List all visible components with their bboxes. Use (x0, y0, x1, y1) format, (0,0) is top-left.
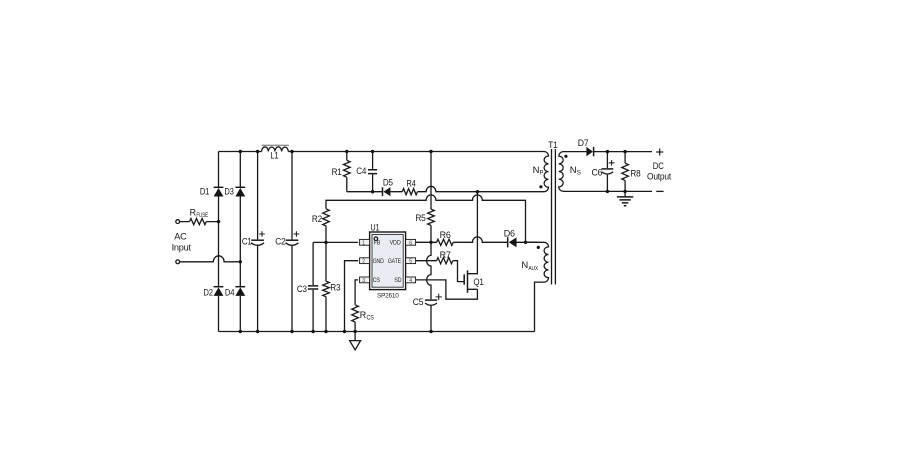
svg-text:U1: U1 (371, 223, 380, 234)
svg-text:C4: C4 (356, 166, 367, 177)
svg-text:R: R (190, 208, 196, 219)
svg-text:4: 4 (409, 278, 412, 284)
svg-text:D2: D2 (203, 288, 212, 299)
svg-text:6: 6 (409, 240, 412, 246)
svg-text:L1: L1 (270, 151, 278, 162)
svg-text:CS: CS (373, 278, 380, 284)
svg-text:VDD: VDD (390, 240, 402, 246)
svg-text:R4: R4 (406, 178, 416, 189)
svg-text:C6: C6 (592, 168, 603, 179)
svg-text:FUSE: FUSE (196, 212, 208, 219)
svg-text:T1: T1 (548, 140, 557, 151)
svg-text:D1: D1 (200, 187, 209, 198)
svg-text:SD: SD (394, 278, 402, 284)
svg-text:3: 3 (362, 278, 365, 284)
svg-text:AC: AC (174, 232, 187, 243)
svg-text:Input: Input (172, 242, 192, 253)
svg-text:D6: D6 (504, 229, 515, 240)
svg-text:C1: C1 (242, 237, 252, 248)
svg-text:R1: R1 (332, 167, 342, 178)
svg-text:Output: Output (647, 172, 672, 183)
svg-text:D7: D7 (578, 138, 589, 149)
svg-text:Q1: Q1 (473, 277, 483, 288)
svg-text:R2: R2 (312, 214, 322, 225)
svg-text:R6: R6 (440, 230, 451, 241)
svg-text:FB: FB (374, 240, 381, 246)
svg-text:N: N (570, 165, 577, 176)
svg-text:S: S (577, 170, 581, 177)
svg-text:D3: D3 (224, 187, 233, 198)
svg-text:R5: R5 (415, 213, 425, 224)
svg-text:D4: D4 (225, 288, 235, 299)
svg-text:D5: D5 (383, 178, 393, 189)
svg-text:C5: C5 (413, 297, 424, 308)
svg-text:R: R (360, 310, 366, 321)
svg-text:R7: R7 (440, 250, 451, 261)
svg-text:SP2610: SP2610 (377, 292, 399, 299)
svg-text:5: 5 (409, 259, 412, 265)
svg-text:C2: C2 (275, 237, 285, 248)
svg-text:CS: CS (367, 315, 374, 322)
svg-text:R8: R8 (630, 168, 640, 179)
svg-text:R3: R3 (330, 283, 340, 294)
svg-text:2: 2 (362, 259, 365, 265)
svg-text:DC: DC (653, 161, 664, 172)
svg-text:N: N (533, 165, 540, 176)
svg-text:P: P (540, 170, 544, 177)
svg-text:GATE: GATE (388, 259, 401, 265)
svg-text:C3: C3 (297, 284, 307, 295)
svg-text:AUX: AUX (528, 266, 538, 272)
svg-text:GND: GND (373, 259, 385, 265)
svg-text:N: N (521, 260, 528, 271)
svg-text:1: 1 (362, 240, 365, 246)
